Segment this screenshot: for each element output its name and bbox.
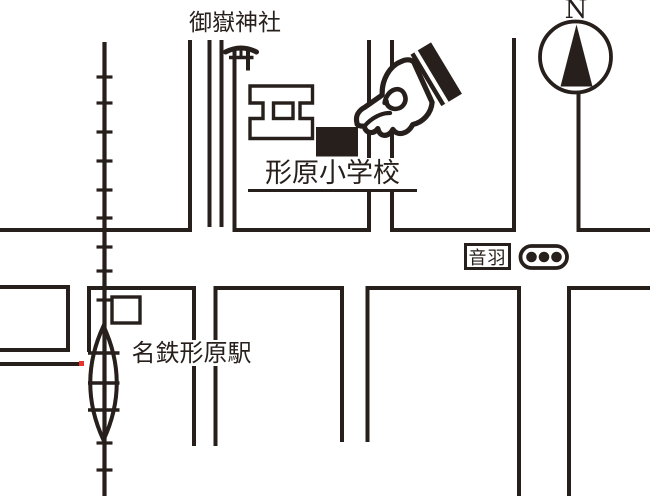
station-label: 名鉄形原駅 [128, 340, 255, 366]
compass-north-label: N [561, 0, 591, 24]
intersection-sign-label: 音羽 [469, 244, 507, 270]
pointing-hand-icon [341, 42, 464, 151]
red-dot-marker [79, 361, 84, 366]
traffic-light-icon [521, 246, 568, 268]
school-building-outline [250, 86, 313, 139]
school-label: 形原小学校 [248, 158, 417, 192]
torii-icon [226, 47, 257, 71]
railway-line-icon [88, 42, 120, 496]
block-outline [0, 287, 68, 350]
shrine-label: 御嶽神社 [188, 11, 282, 36]
map-canvas [0, 0, 650, 496]
compass-north-icon [540, 22, 611, 93]
station-building-icon [112, 297, 140, 323]
black-building-marker [316, 127, 358, 157]
intersection-sign: 音羽 [464, 243, 511, 270]
access-map: 御嶽神社 形原小学校 名鉄形原駅 音羽 N [0, 0, 650, 496]
